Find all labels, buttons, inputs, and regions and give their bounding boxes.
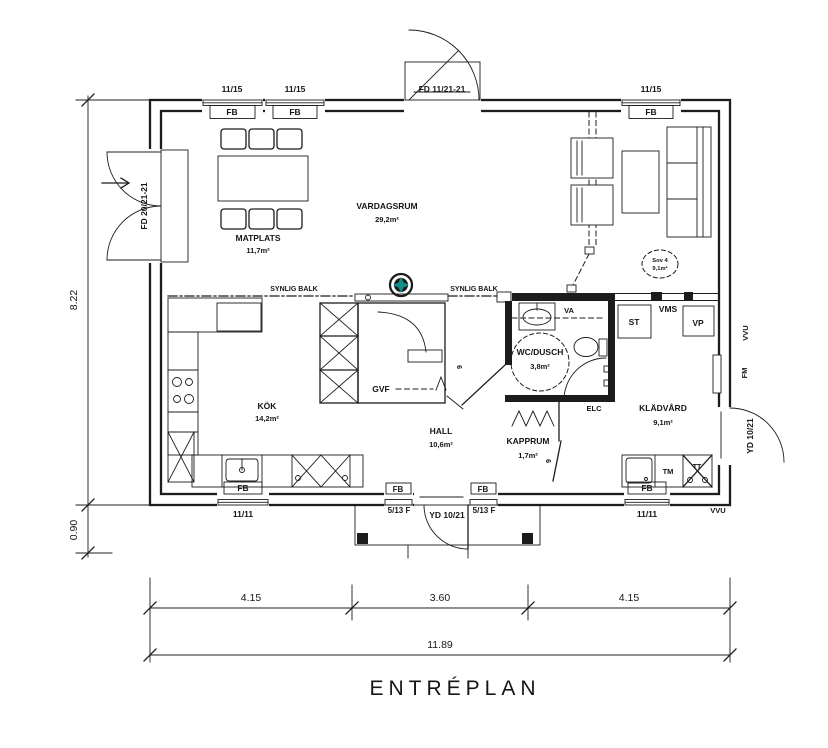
kapprum-door-leaf [553,441,561,481]
door-right-swing [730,408,784,462]
laundry-sink [626,458,652,483]
vms-label: VMS [659,304,678,314]
door-right-label: YD 10/21 [745,418,755,454]
window-frame-label: FB [478,485,489,494]
sidelight-code: 5/13 F [388,506,411,515]
staircase [320,294,463,409]
elc-label: ELC [587,404,603,413]
window-frame-label: FB [289,107,300,117]
window-frame-label: FB [393,485,404,494]
fm-label: FM [740,368,749,379]
shower-door [564,358,606,400]
room-area-hall: 10,6m² [429,440,453,449]
gvf-label: GVF [372,384,389,394]
chimney-symbol [390,274,412,296]
door-width-label: 9 [546,459,553,463]
dim-segment: 3.60 [430,592,451,604]
dining-table [218,156,308,201]
vvu-label: VVU [741,325,750,340]
window-code: 11/11 [233,509,254,519]
room-label-kok: KÖK [258,401,278,411]
chimney-star-icon [393,277,409,293]
room-area-matplats: 11,7m² [246,246,270,255]
sidelight-code: 5/13 F [473,506,496,515]
livingroom-furniture [567,112,711,292]
room-label-wc: WC/DUSCH [517,347,564,357]
tm-label: TM [663,467,674,476]
toilet [574,338,598,357]
dim-segment: 4.15 [241,592,262,604]
door-top-frame [405,62,480,100]
dim-segment: 4.15 [619,592,640,604]
optional-room-name: Sov 4 [652,258,668,264]
room-label-kapprum: KAPPRUM [507,436,550,446]
windows [203,100,721,505]
room-label-hall: HALL [430,426,453,436]
synlig-balk-label: SYNLIG BALK [270,286,317,293]
room-area-wc: 3,8m² [530,362,550,371]
kapprum-fixtures [512,411,554,426]
window-code: 11/11 [637,509,658,519]
interior-walls [168,292,719,441]
tt-label: TT [693,464,702,471]
kitchen-fixtures [168,298,363,487]
fm-niche [713,355,721,393]
dining-furniture [218,129,308,229]
door-width-label: 9 [457,365,464,369]
laundry-fixtures [618,305,714,487]
floor-plan: 11/15 11/15 11/15 FB FB FB FD 11/21-21 F… [0,0,828,748]
stair-walk-line [378,312,426,352]
window-code: 11/15 [641,84,662,94]
dim-porch: 0.90 [68,520,80,541]
room-label-matplats: MATPLATS [235,233,280,243]
dim-height: 8.22 [68,290,80,311]
wc-door-leaf [462,365,505,405]
window-frame-label: FB [641,483,652,493]
st-label: ST [629,317,641,327]
coffee-table [622,151,659,213]
stair-handrail [408,350,442,362]
coat-hangers [512,411,554,426]
door-entry-label: YD 10/21 [429,510,465,520]
room-area-kapprum: 1,7m² [518,451,538,460]
window-frame-label: FB [645,107,656,117]
sofa [667,127,711,237]
door-left-frame [161,150,188,262]
window-frame-label: FB [226,107,237,117]
optional-room-area: 9,1m² [652,265,667,272]
window-code: 11/15 [285,84,306,94]
window-code: 11/15 [222,84,243,94]
vp-label: VP [692,318,704,328]
dim-total: 11.89 [427,639,453,651]
door-left-label: FD 20/21-21 [139,182,149,230]
optional-room-circle [642,250,678,278]
room-area-vardagsrum: 29,2m² [375,215,399,224]
door-top-label: FD 11/21-21 [419,84,466,94]
room-label-kladvard: KLÄDVÅRD [639,403,687,413]
synlig-balk-label: SYNLIG BALK [450,286,497,293]
window-frame-label: FB [237,483,248,493]
room-area-kladvard: 9,1m² [653,418,673,427]
vvu-label: VVU [710,506,725,515]
plan-title: ENTRÉPLAN [369,677,540,700]
va-label: VA [564,306,574,315]
room-area-kok: 14,2m² [255,414,279,423]
room-label-vardagsrum: VARDAGSRUM [356,201,417,211]
